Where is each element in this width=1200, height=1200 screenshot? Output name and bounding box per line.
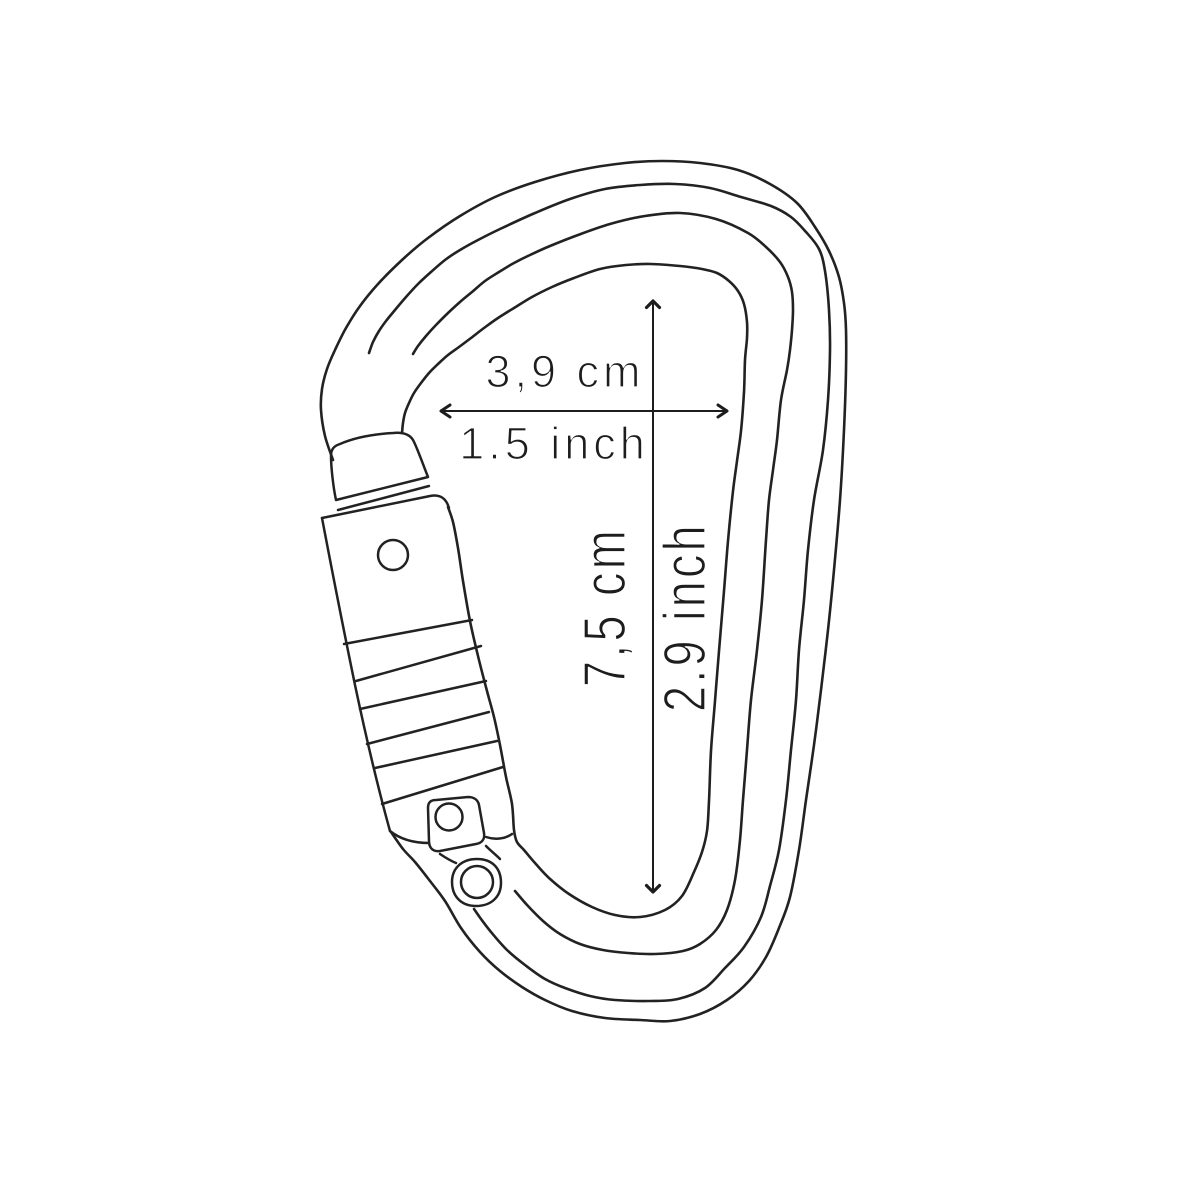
svg-text:1.5 inch: 1.5 inch [459, 418, 649, 469]
svg-text:3,9 cm: 3,9 cm [485, 346, 644, 397]
svg-text:7,5 cm: 7,5 cm [572, 527, 638, 687]
svg-text:2.9 inch: 2.9 inch [652, 522, 718, 712]
